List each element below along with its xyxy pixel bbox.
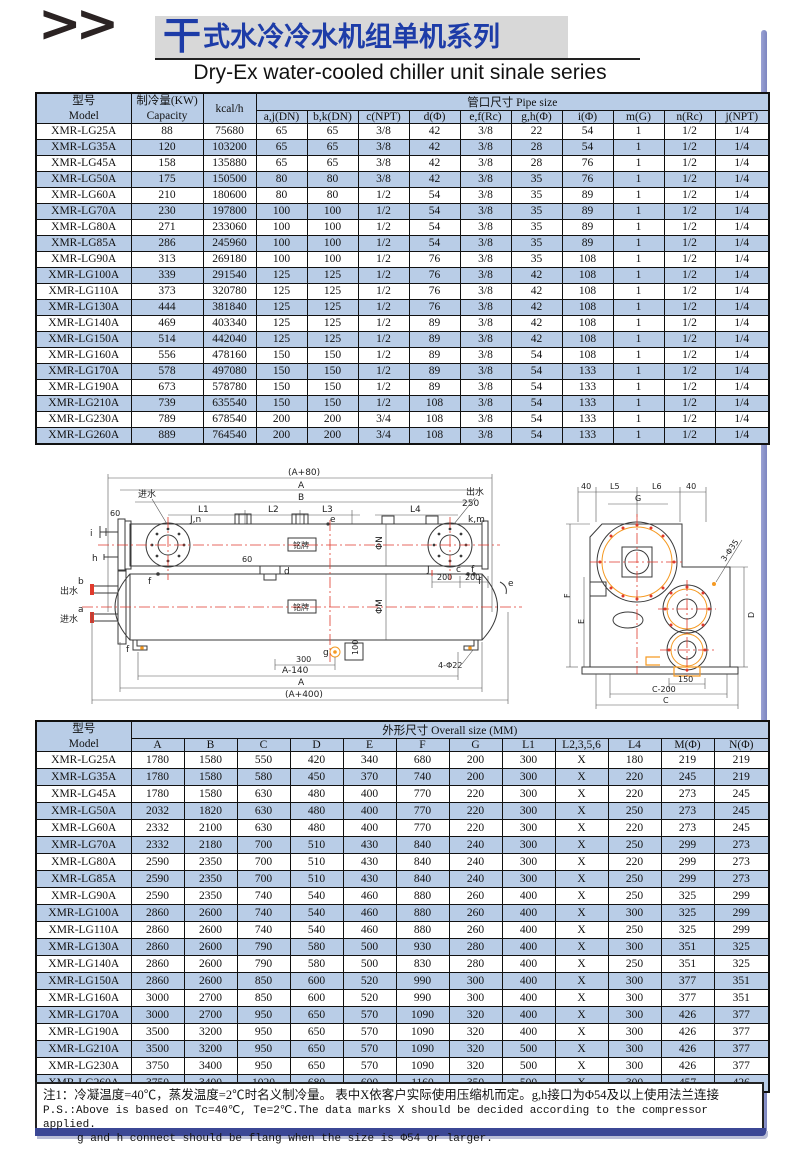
value-cell: 240 xyxy=(449,854,502,871)
value-cell: 3400 xyxy=(184,1058,237,1075)
value-cell: 469 xyxy=(131,316,203,332)
value-cell: 2700 xyxy=(184,990,237,1007)
value-cell: 150 xyxy=(307,348,358,364)
value-cell: 76 xyxy=(409,252,460,268)
model-cell: XMR-LG110A xyxy=(36,922,131,939)
value-cell: 1/2 xyxy=(664,156,715,172)
value-cell: 76 xyxy=(562,172,613,188)
value-cell: 381840 xyxy=(203,300,256,316)
value-cell: 108 xyxy=(562,348,613,364)
value-cell: 3/8 xyxy=(358,172,409,188)
value-cell: 299 xyxy=(714,888,769,905)
value-cell: 88 xyxy=(131,124,203,140)
value-cell: 700 xyxy=(237,837,290,854)
value-cell: 1 xyxy=(613,332,664,348)
model-cell: XMR-LG170A xyxy=(36,1007,131,1024)
value-cell: 220 xyxy=(449,786,502,803)
value-cell: 300 xyxy=(608,939,661,956)
value-cell: 426 xyxy=(661,1007,714,1024)
value-cell: 540 xyxy=(290,888,343,905)
model-cell: XMR-LG100A xyxy=(36,905,131,922)
value-cell: 100 xyxy=(307,236,358,252)
value-cell: 220 xyxy=(449,803,502,820)
table-row: XMR-LG25A887568065653/8423/8225411/21/4 xyxy=(36,124,769,140)
value-cell: 219 xyxy=(714,769,769,786)
value-cell: 830 xyxy=(396,956,449,973)
col-c: c(NPT) xyxy=(358,111,409,124)
value-cell: 1 xyxy=(613,156,664,172)
value-cell: X xyxy=(555,973,608,990)
value-cell: 200 xyxy=(256,412,307,428)
value-cell: 1/4 xyxy=(715,284,769,300)
svg-text:L6: L6 xyxy=(652,482,662,491)
value-cell: 950 xyxy=(237,1058,290,1075)
value-cell: 600 xyxy=(290,990,343,1007)
value-cell: 426 xyxy=(661,1058,714,1075)
value-cell: 42 xyxy=(511,332,562,348)
value-cell: 2590 xyxy=(131,888,184,905)
value-cell: 65 xyxy=(256,124,307,140)
value-cell: 770 xyxy=(396,786,449,803)
value-cell: 65 xyxy=(256,156,307,172)
value-cell: 325 xyxy=(661,922,714,939)
model-cell: XMR-LG50A xyxy=(36,803,131,820)
col-ef: e,f(Rc) xyxy=(460,111,511,124)
value-cell: 80 xyxy=(307,188,358,204)
model-cell: XMR-LG230A xyxy=(36,1058,131,1075)
value-cell: 320 xyxy=(449,1041,502,1058)
value-cell: 1/2 xyxy=(664,412,715,428)
value-cell: X xyxy=(555,854,608,871)
col-header-overall-size: 外形尺寸 Overall size (MM) xyxy=(131,721,769,739)
value-cell: 426 xyxy=(661,1041,714,1058)
value-cell: 1/2 xyxy=(664,300,715,316)
value-cell: 103200 xyxy=(203,140,256,156)
model-cell: XMR-LG90A xyxy=(36,888,131,905)
value-cell: 510 xyxy=(290,854,343,871)
value-cell: 3/8 xyxy=(460,156,511,172)
svg-text:ΦM: ΦM xyxy=(375,599,385,614)
svg-text:G: G xyxy=(635,494,641,503)
table-row: XMR-LG35A17801580580450370740200300X2202… xyxy=(36,769,769,786)
value-cell: 273 xyxy=(661,803,714,820)
value-cell: 108 xyxy=(562,332,613,348)
value-cell: 2600 xyxy=(184,905,237,922)
value-cell: 2860 xyxy=(131,956,184,973)
table-row: XMR-LG150A5144420401251251/2893/84210811… xyxy=(36,332,769,348)
value-cell: 790 xyxy=(237,956,290,973)
value-cell: 135880 xyxy=(203,156,256,172)
svg-text:f: f xyxy=(126,645,130,655)
value-cell: 460 xyxy=(343,922,396,939)
value-cell: 500 xyxy=(502,1058,555,1075)
value-cell: 1 xyxy=(613,396,664,412)
value-cell: 89 xyxy=(562,204,613,220)
value-cell: 442040 xyxy=(203,332,256,348)
svg-text:A: A xyxy=(298,678,305,688)
value-cell: 1 xyxy=(613,364,664,380)
value-cell: 35 xyxy=(511,204,562,220)
svg-text:L5: L5 xyxy=(610,482,620,491)
value-cell: 680 xyxy=(396,752,449,769)
col-d: d(Φ) xyxy=(409,111,460,124)
value-cell: 300 xyxy=(608,1041,661,1058)
value-cell: 3/8 xyxy=(460,316,511,332)
value-cell: 65 xyxy=(307,156,358,172)
value-cell: 250 xyxy=(608,871,661,888)
col-header-kcal: kcal/h xyxy=(203,93,256,124)
value-cell: 200 xyxy=(256,428,307,445)
value-cell: 1/2 xyxy=(358,300,409,316)
value-cell: 22 xyxy=(511,124,562,140)
value-cell: 180 xyxy=(608,752,661,769)
value-cell: 299 xyxy=(714,905,769,922)
value-cell: 1/4 xyxy=(715,412,769,428)
value-cell: 3/8 xyxy=(460,284,511,300)
table-row: XMR-LG160A5564781601501501/2893/85410811… xyxy=(36,348,769,364)
table-row: XMR-LG50A20321820630480400770220300X2502… xyxy=(36,803,769,820)
model-cell: XMR-LG35A xyxy=(36,140,131,156)
value-cell: 220 xyxy=(608,820,661,837)
model-cell: XMR-LG80A xyxy=(36,854,131,871)
svg-text:(A+80): (A+80) xyxy=(288,468,320,478)
value-cell: 1/2 xyxy=(664,268,715,284)
svg-text:h: h xyxy=(92,554,98,564)
value-cell: 3/8 xyxy=(460,428,511,445)
value-cell: 2032 xyxy=(131,803,184,820)
svg-text:E: E xyxy=(577,619,586,624)
value-cell: 2600 xyxy=(184,973,237,990)
page-title-rest: 式水冷冷水机组单机系列 xyxy=(203,24,500,51)
svg-text:e: e xyxy=(508,579,514,589)
value-cell: X xyxy=(555,871,608,888)
value-cell: 300 xyxy=(608,1024,661,1041)
col-B: B xyxy=(184,739,237,752)
svg-text:L3: L3 xyxy=(322,505,333,515)
value-cell: 1/2 xyxy=(664,124,715,140)
value-cell: 42 xyxy=(409,156,460,172)
value-cell: 480 xyxy=(290,820,343,837)
value-cell: 1 xyxy=(613,172,664,188)
value-cell: 42 xyxy=(511,316,562,332)
value-cell: 2590 xyxy=(131,854,184,871)
value-cell: 1780 xyxy=(131,752,184,769)
value-cell: 3000 xyxy=(131,990,184,1007)
value-cell: 351 xyxy=(661,939,714,956)
value-cell: 1 xyxy=(613,380,664,396)
value-cell: 1/2 xyxy=(358,348,409,364)
value-cell: 299 xyxy=(661,837,714,854)
value-cell: 3/8 xyxy=(460,252,511,268)
svg-text:L4: L4 xyxy=(410,505,421,515)
value-cell: 150 xyxy=(256,380,307,396)
value-cell: 271 xyxy=(131,220,203,236)
value-cell: 89 xyxy=(409,332,460,348)
value-cell: 1/2 xyxy=(664,348,715,364)
value-cell: 1/2 xyxy=(358,332,409,348)
value-cell: 740 xyxy=(237,905,290,922)
value-cell: 3/8 xyxy=(460,332,511,348)
note-line-cn: 注1：冷凝温度=40℃，蒸发温度=2℃时名义制冷量。 表中X依客户实际使用压缩机… xyxy=(43,1087,756,1104)
note-line-en1: P.S.:Above is based on Tc=40℃, Te=2℃.The… xyxy=(43,1104,756,1132)
value-cell: 950 xyxy=(237,1041,290,1058)
chiller-drawing-svg: (A+80) A B L1 L2 L3 L4 250 进水 出水 J,n k,m xyxy=(30,462,770,714)
value-cell: 3750 xyxy=(131,1058,184,1075)
value-cell: 2700 xyxy=(184,1007,237,1024)
value-cell: 54 xyxy=(511,396,562,412)
value-cell: 650 xyxy=(290,1007,343,1024)
value-cell: 3/8 xyxy=(358,156,409,172)
value-cell: 89 xyxy=(409,364,460,380)
table-row: XMR-LG150A28602600850600520990300400X300… xyxy=(36,973,769,990)
value-cell: 430 xyxy=(343,837,396,854)
svg-text:F: F xyxy=(563,593,572,598)
value-cell: 400 xyxy=(343,820,396,837)
svg-text:(A+400): (A+400) xyxy=(285,690,323,700)
value-cell: 325 xyxy=(714,956,769,973)
value-cell: 1/2 xyxy=(664,188,715,204)
value-cell: 430 xyxy=(343,871,396,888)
value-cell: 1/2 xyxy=(664,220,715,236)
value-cell: 478160 xyxy=(203,348,256,364)
value-cell: 219 xyxy=(661,752,714,769)
pipe-size-table-body: XMR-LG25A887568065653/8423/8225411/21/4X… xyxy=(36,124,769,445)
value-cell: 300 xyxy=(502,803,555,820)
value-cell: 400 xyxy=(502,939,555,956)
value-cell: X xyxy=(555,837,608,854)
value-cell: 100 xyxy=(256,220,307,236)
value-cell: 108 xyxy=(409,412,460,428)
value-cell: 320 xyxy=(449,1024,502,1041)
value-cell: 300 xyxy=(608,1058,661,1075)
value-cell: 210 xyxy=(131,188,203,204)
value-cell: 2600 xyxy=(184,956,237,973)
value-cell: 377 xyxy=(661,973,714,990)
value-cell: 400 xyxy=(502,956,555,973)
value-cell: 150 xyxy=(307,396,358,412)
table-row: XMR-LG25A17801580550420340680200300X1802… xyxy=(36,752,769,769)
value-cell: 133 xyxy=(562,428,613,445)
value-cell: 150 xyxy=(256,396,307,412)
value-cell: 1/4 xyxy=(715,188,769,204)
svg-text:d: d xyxy=(284,567,290,577)
value-cell: 1090 xyxy=(396,1007,449,1024)
value-cell: 245 xyxy=(714,820,769,837)
svg-text:40: 40 xyxy=(686,482,696,491)
value-cell: 630 xyxy=(237,803,290,820)
value-cell: 740 xyxy=(237,888,290,905)
value-cell: 3500 xyxy=(131,1041,184,1058)
col-j: j(NPT) xyxy=(715,111,769,124)
value-cell: 35 xyxy=(511,220,562,236)
value-cell: 108 xyxy=(562,252,613,268)
value-cell: 1 xyxy=(613,252,664,268)
svg-text:B: B xyxy=(298,493,304,503)
value-cell: 673 xyxy=(131,380,203,396)
value-cell: 300 xyxy=(502,769,555,786)
value-cell: X xyxy=(555,820,608,837)
value-cell: 89 xyxy=(562,188,613,204)
value-cell: 1/2 xyxy=(664,332,715,348)
value-cell: 300 xyxy=(608,905,661,922)
svg-text:250: 250 xyxy=(462,499,479,509)
value-cell: 510 xyxy=(290,871,343,888)
value-cell: 3/8 xyxy=(460,364,511,380)
value-cell: 3/8 xyxy=(460,268,511,284)
svg-text:C: C xyxy=(663,696,669,705)
svg-text:200: 200 xyxy=(465,573,480,582)
value-cell: 28 xyxy=(511,140,562,156)
svg-text:出水: 出水 xyxy=(466,486,484,498)
value-cell: 3/8 xyxy=(460,172,511,188)
value-cell: 570 xyxy=(343,1058,396,1075)
value-cell: 125 xyxy=(307,300,358,316)
value-cell: 108 xyxy=(562,268,613,284)
svg-text:J: J xyxy=(426,565,430,575)
value-cell: 764540 xyxy=(203,428,256,445)
value-cell: 108 xyxy=(562,300,613,316)
value-cell: 2860 xyxy=(131,905,184,922)
value-cell: 133 xyxy=(562,396,613,412)
value-cell: 240 xyxy=(449,871,502,888)
value-cell: 200 xyxy=(449,752,502,769)
value-cell: 3/8 xyxy=(460,124,511,140)
value-cell: 1/2 xyxy=(358,220,409,236)
value-cell: 1/2 xyxy=(664,428,715,445)
table-row: XMR-LG110A28602600740540460880260400X250… xyxy=(36,922,769,939)
table-row: XMR-LG70A23322180700510430840240300X2502… xyxy=(36,837,769,854)
value-cell: 320 xyxy=(449,1058,502,1075)
value-cell: 1 xyxy=(613,284,664,300)
value-cell: 3/8 xyxy=(460,396,511,412)
value-cell: 1 xyxy=(613,412,664,428)
value-cell: 175 xyxy=(131,172,203,188)
value-cell: 54 xyxy=(511,380,562,396)
col-L1: L1 xyxy=(502,739,555,752)
col-i: i(Φ) xyxy=(562,111,613,124)
value-cell: 2350 xyxy=(184,871,237,888)
value-cell: 1/2 xyxy=(358,236,409,252)
value-cell: 260 xyxy=(449,922,502,939)
value-cell: 1/4 xyxy=(715,236,769,252)
value-cell: 1/2 xyxy=(358,396,409,412)
model-cell: XMR-LG140A xyxy=(36,956,131,973)
value-cell: 220 xyxy=(608,854,661,871)
value-cell: 150 xyxy=(307,380,358,396)
value-cell: 400 xyxy=(502,905,555,922)
value-cell: 250 xyxy=(608,888,661,905)
value-cell: 1/4 xyxy=(715,396,769,412)
col-gh: g,h(Φ) xyxy=(511,111,562,124)
model-cell: XMR-LG50A xyxy=(36,172,131,188)
value-cell: 3/8 xyxy=(358,124,409,140)
pipe-size-table: 型号 Model 制冷量(KW) Capacity kcal/h 管口尺寸 Pi… xyxy=(35,92,770,445)
value-cell: 1/2 xyxy=(358,268,409,284)
model-cell: XMR-LG160A xyxy=(36,990,131,1007)
value-cell: 1/2 xyxy=(358,380,409,396)
title-underline xyxy=(155,58,640,60)
value-cell: 1/2 xyxy=(358,188,409,204)
value-cell: 1/4 xyxy=(715,428,769,445)
table-row: XMR-LG100A28602600740540460880260400X300… xyxy=(36,905,769,922)
value-cell: X xyxy=(555,1024,608,1041)
model-cell: XMR-LG85A xyxy=(36,871,131,888)
col-A: A xyxy=(131,739,184,752)
value-cell: 3/8 xyxy=(460,236,511,252)
value-cell: 291540 xyxy=(203,268,256,284)
table-row: XMR-LG170A5784970801501501/2893/85413311… xyxy=(36,364,769,380)
value-cell: 54 xyxy=(511,412,562,428)
value-cell: X xyxy=(555,905,608,922)
value-cell: 990 xyxy=(396,973,449,990)
value-cell: 403340 xyxy=(203,316,256,332)
value-cell: 125 xyxy=(256,316,307,332)
value-cell: 240 xyxy=(449,837,502,854)
value-cell: 65 xyxy=(307,124,358,140)
value-cell: 230 xyxy=(131,204,203,220)
col-n: n(Rc) xyxy=(664,111,715,124)
value-cell: 2860 xyxy=(131,939,184,956)
value-cell: 35 xyxy=(511,252,562,268)
value-cell: 54 xyxy=(409,236,460,252)
value-cell: 700 xyxy=(237,854,290,871)
overall-subheader-row: A B C D E F G L1 L2,3,5,6 L4 M(Φ) N(Φ) xyxy=(36,739,769,752)
svg-text:60: 60 xyxy=(242,555,252,564)
value-cell: 313 xyxy=(131,252,203,268)
value-cell: 510 xyxy=(290,837,343,854)
value-cell: 100 xyxy=(307,252,358,268)
overall-size-table-body: XMR-LG25A17801580550420340680200300X1802… xyxy=(36,752,769,1093)
value-cell: 790 xyxy=(237,939,290,956)
table-row: XMR-LG80A25902350700510430840240300X2202… xyxy=(36,854,769,871)
value-cell: X xyxy=(555,990,608,1007)
value-cell: 2332 xyxy=(131,837,184,854)
value-cell: 54 xyxy=(511,348,562,364)
svg-text:a: a xyxy=(78,605,84,615)
value-cell: 42 xyxy=(511,300,562,316)
value-cell: 75680 xyxy=(203,124,256,140)
value-cell: 325 xyxy=(661,905,714,922)
value-cell: 400 xyxy=(343,803,396,820)
value-cell: 3/8 xyxy=(460,380,511,396)
model-cell: XMR-LG100A xyxy=(36,268,131,284)
value-cell: 300 xyxy=(502,854,555,871)
value-cell: 42 xyxy=(409,172,460,188)
overall-size-table: 型号 Model 外形尺寸 Overall size (MM) A B C D … xyxy=(35,720,770,1093)
value-cell: 1/2 xyxy=(664,316,715,332)
model-cell: XMR-LG190A xyxy=(36,380,131,396)
value-cell: 520 xyxy=(343,990,396,1007)
value-cell: 108 xyxy=(562,316,613,332)
value-cell: 580 xyxy=(237,769,290,786)
value-cell: 460 xyxy=(343,888,396,905)
page-title: 干 式水冷冷水机组单机系列 xyxy=(155,16,568,58)
value-cell: 1/4 xyxy=(715,204,769,220)
value-cell: 80 xyxy=(307,172,358,188)
value-cell: 1/2 xyxy=(664,204,715,220)
value-cell: 245 xyxy=(661,769,714,786)
value-cell: 150500 xyxy=(203,172,256,188)
value-cell: 444 xyxy=(131,300,203,316)
value-cell: 260 xyxy=(449,905,502,922)
value-cell: 180600 xyxy=(203,188,256,204)
value-cell: 76 xyxy=(409,268,460,284)
svg-text:c: c xyxy=(456,565,461,575)
table-row: XMR-LG85A2862459601001001/2543/8358911/2… xyxy=(36,236,769,252)
value-cell: 2332 xyxy=(131,820,184,837)
value-cell: 42 xyxy=(409,140,460,156)
svg-text:k,m: k,m xyxy=(468,515,485,525)
